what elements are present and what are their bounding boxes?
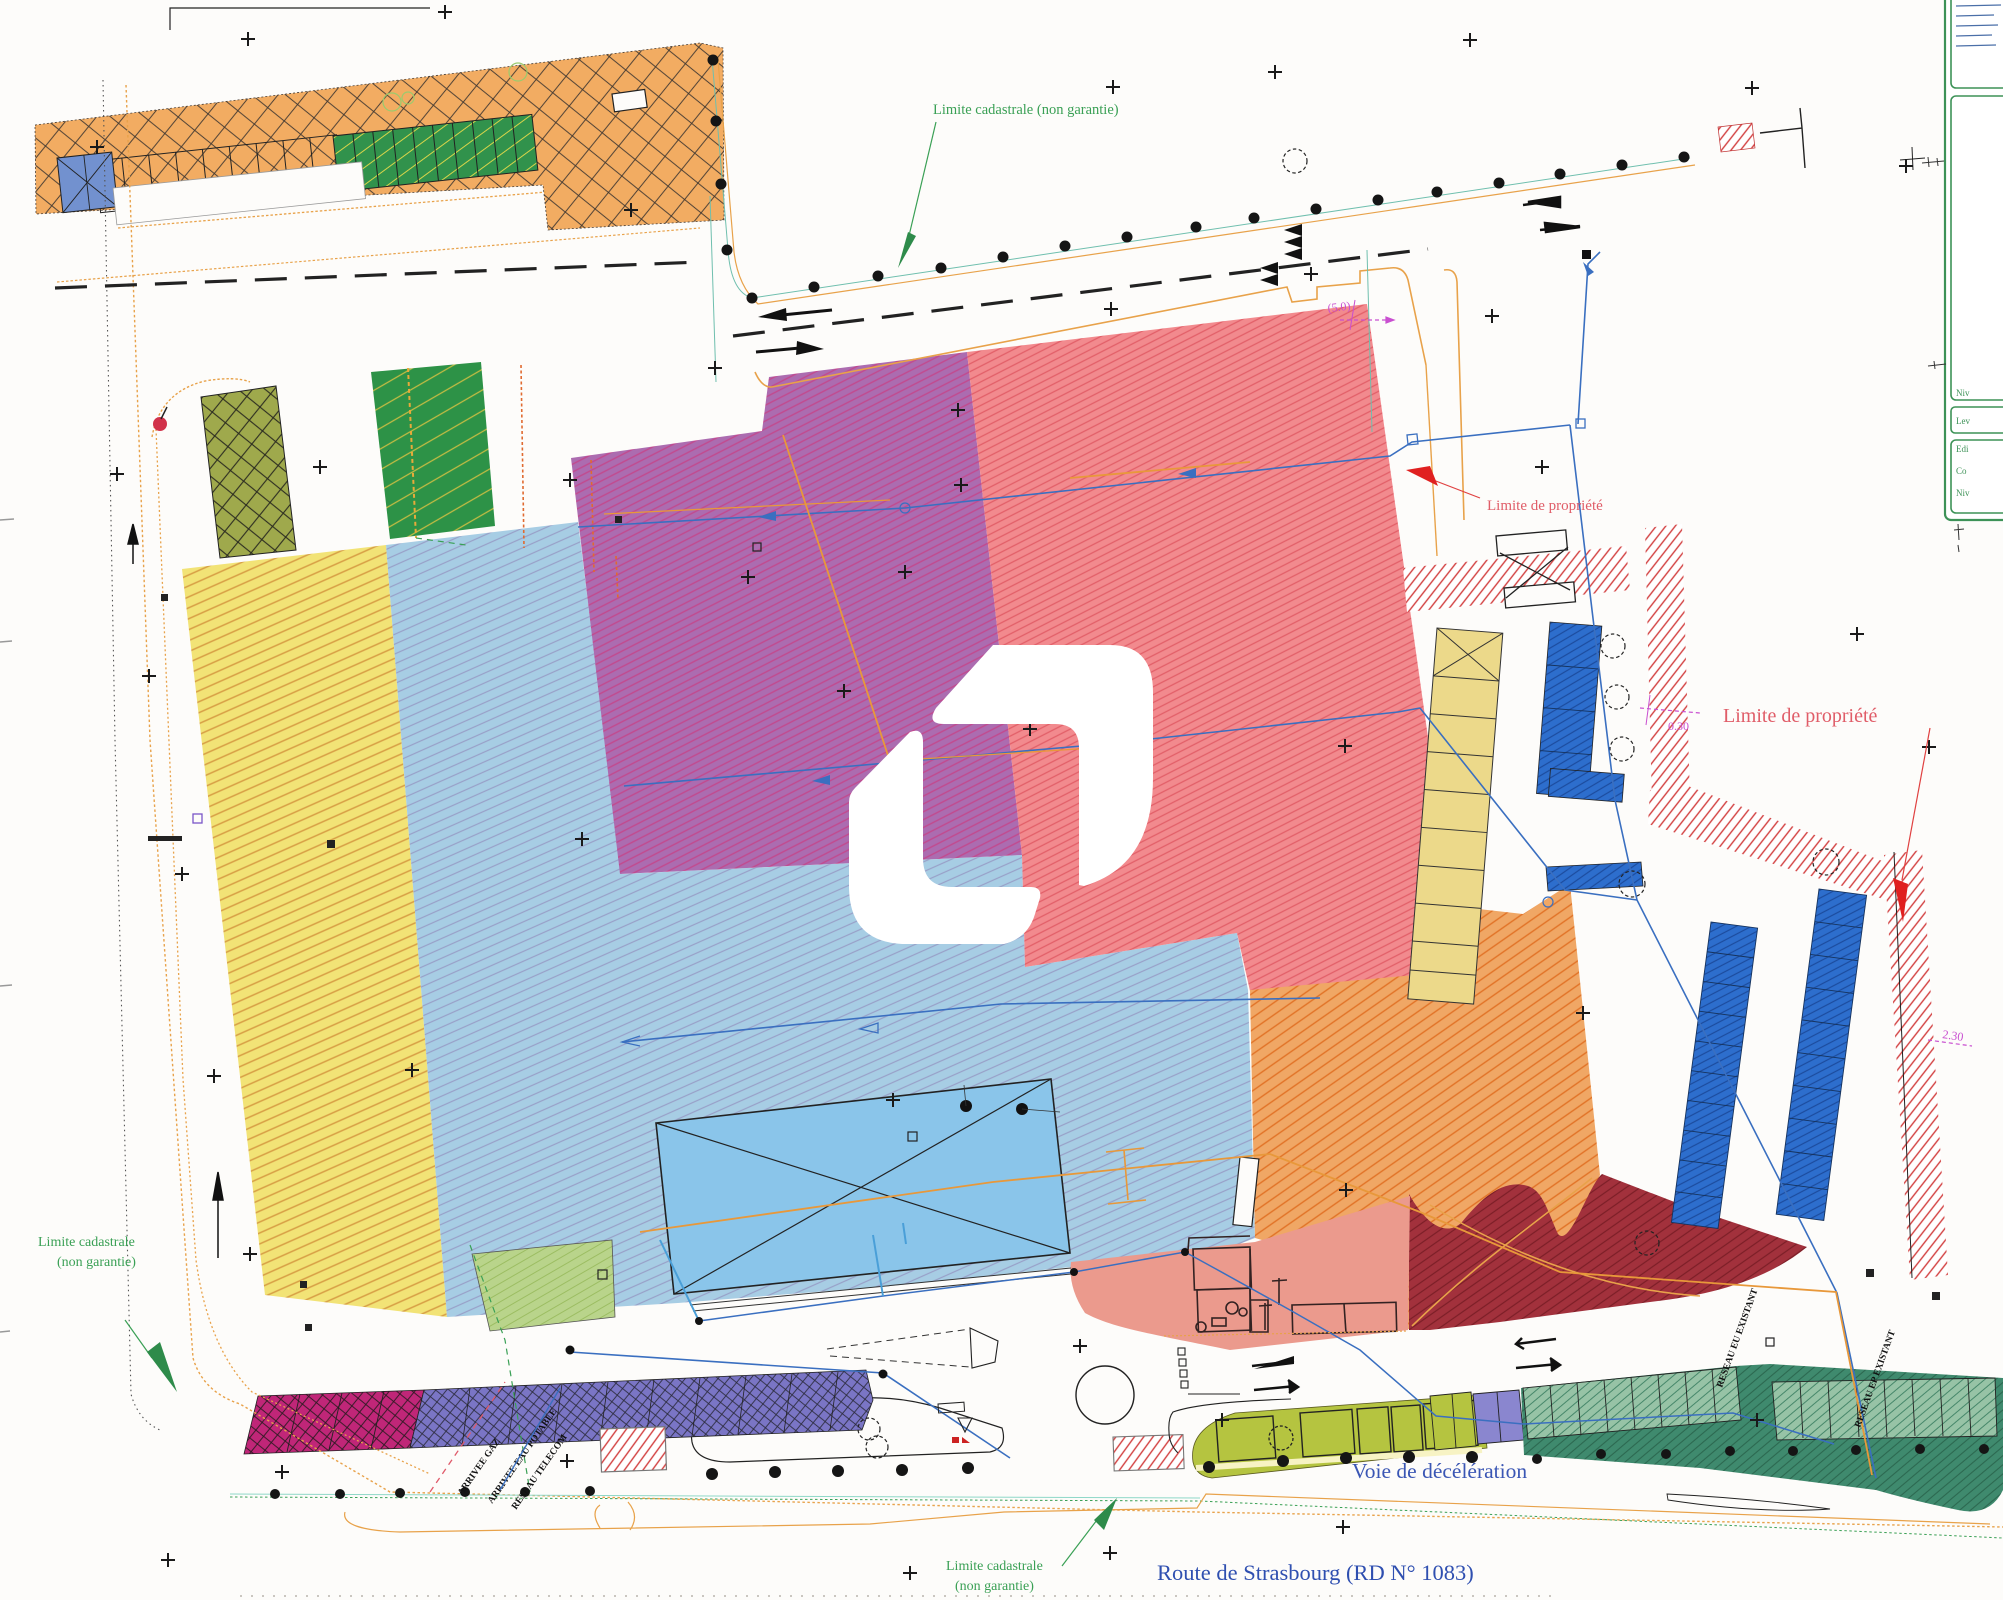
svg-text:Limite cadastrale: Limite cadastrale [946,1559,1043,1574]
svg-text:Limite de propriété: Limite de propriété [1723,705,1878,727]
svg-text:(non garantie): (non garantie) [955,1579,1034,1594]
svg-text:Limite cadastrale (non garanti: Limite cadastrale (non garantie) [933,102,1119,118]
svg-text:Edi: Edi [1956,444,1969,454]
svg-text:0.30: 0.30 [1668,719,1689,733]
svg-text:(non garantie): (non garantie) [57,1255,136,1270]
svg-text:Niv: Niv [1956,388,1970,398]
svg-text:Voie de décélération: Voie de décélération [1352,1459,1527,1483]
svg-text:Limite de propriété: Limite de propriété [1487,498,1603,514]
svg-text:Niv: Niv [1956,488,1970,498]
svg-text:(5.0): (5.0) [1327,299,1351,315]
svg-text:Limite cadastrale: Limite cadastrale [38,1235,135,1250]
svg-text:Route de Strasbourg (RD N° 108: Route de Strasbourg (RD N° 1083) [1157,1560,1474,1585]
svg-text:Lev: Lev [1956,416,1970,426]
svg-text:Co: Co [1956,466,1967,476]
svg-text:2.30: 2.30 [1942,1027,1965,1044]
